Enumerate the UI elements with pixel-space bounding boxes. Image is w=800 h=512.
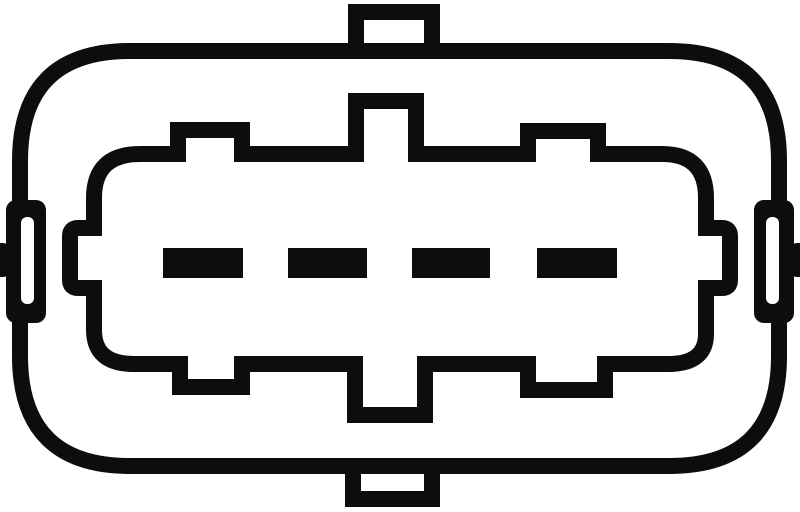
left-clip-nub xyxy=(0,243,9,277)
terminal-3 xyxy=(412,248,490,278)
terminal-4 xyxy=(537,248,617,278)
connector-diagram-svg xyxy=(0,0,800,512)
left-bracket-slot xyxy=(21,217,34,304)
bottom-latch-tab xyxy=(353,466,432,499)
connector-line-drawing xyxy=(0,0,800,512)
top-latch-tab xyxy=(356,12,432,51)
right-clip-nub xyxy=(791,243,800,277)
terminal-2 xyxy=(288,248,367,278)
right-bracket-slot xyxy=(766,217,779,304)
outer-housing-outline xyxy=(20,51,779,466)
terminal-pins xyxy=(163,248,617,278)
terminal-1 xyxy=(163,248,243,278)
